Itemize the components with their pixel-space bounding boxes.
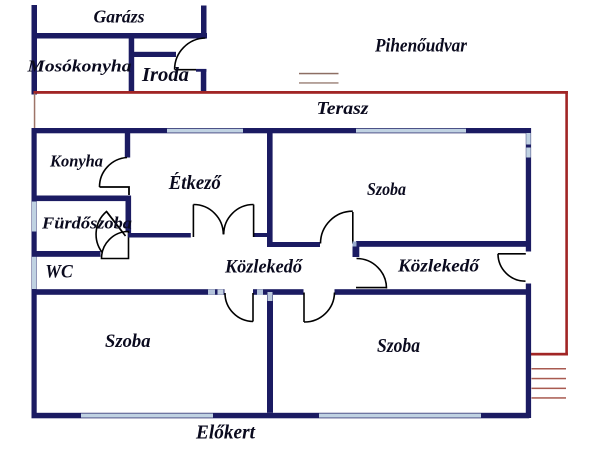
svg-text:Konyha: Konyha [49,152,103,171]
svg-text:Étkező: Étkező [168,172,222,194]
svg-text:Pihenőudvar: Pihenőudvar [374,36,467,57]
svg-text:Garázs: Garázs [94,7,145,27]
svg-text:Terasz: Terasz [317,98,369,118]
svg-text:Közlekedő: Közlekedő [224,256,303,277]
svg-text:Szoba: Szoba [377,335,420,357]
svg-text:Közlekedő: Közlekedő [397,256,480,276]
svg-text:Iroda: Iroda [141,64,189,86]
svg-text:Mosókonyha: Mosókonyha [26,57,132,76]
svg-text:Fürdőszoba: Fürdőszoba [41,214,133,233]
svg-text:WC: WC [45,262,73,283]
svg-text:Előkert: Előkert [195,422,256,444]
svg-text:Szoba: Szoba [105,331,151,352]
svg-text:Szoba: Szoba [367,179,406,199]
